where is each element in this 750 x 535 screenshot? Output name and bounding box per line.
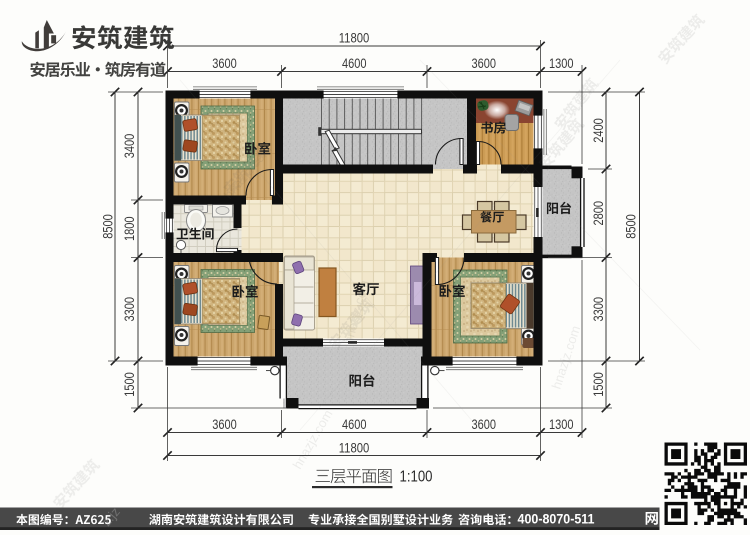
svg-text:3600: 3600 bbox=[472, 55, 497, 71]
svg-text:1500: 1500 bbox=[121, 372, 137, 397]
svg-text:1300: 1300 bbox=[549, 416, 574, 432]
svg-text:4600: 4600 bbox=[342, 416, 367, 432]
svg-text:1:100: 1:100 bbox=[400, 469, 433, 486]
svg-text:1500: 1500 bbox=[590, 372, 606, 397]
svg-text:2400: 2400 bbox=[590, 118, 606, 143]
svg-text:1800: 1800 bbox=[121, 216, 137, 241]
svg-text:400-8070-511: 400-8070-511 bbox=[518, 512, 595, 527]
svg-text:3600: 3600 bbox=[212, 55, 237, 71]
svg-text:8500: 8500 bbox=[623, 214, 639, 239]
svg-text:11800: 11800 bbox=[339, 30, 370, 46]
svg-text:3300: 3300 bbox=[121, 297, 137, 322]
svg-text:3400: 3400 bbox=[121, 134, 137, 159]
svg-text:11800: 11800 bbox=[339, 440, 370, 456]
svg-text:8500: 8500 bbox=[100, 214, 116, 239]
svg-text:2800: 2800 bbox=[590, 201, 606, 226]
svg-text:3300: 3300 bbox=[590, 297, 606, 322]
svg-text:1300: 1300 bbox=[549, 55, 574, 71]
svg-text:3600: 3600 bbox=[212, 416, 237, 432]
svg-text:4600: 4600 bbox=[342, 55, 367, 71]
